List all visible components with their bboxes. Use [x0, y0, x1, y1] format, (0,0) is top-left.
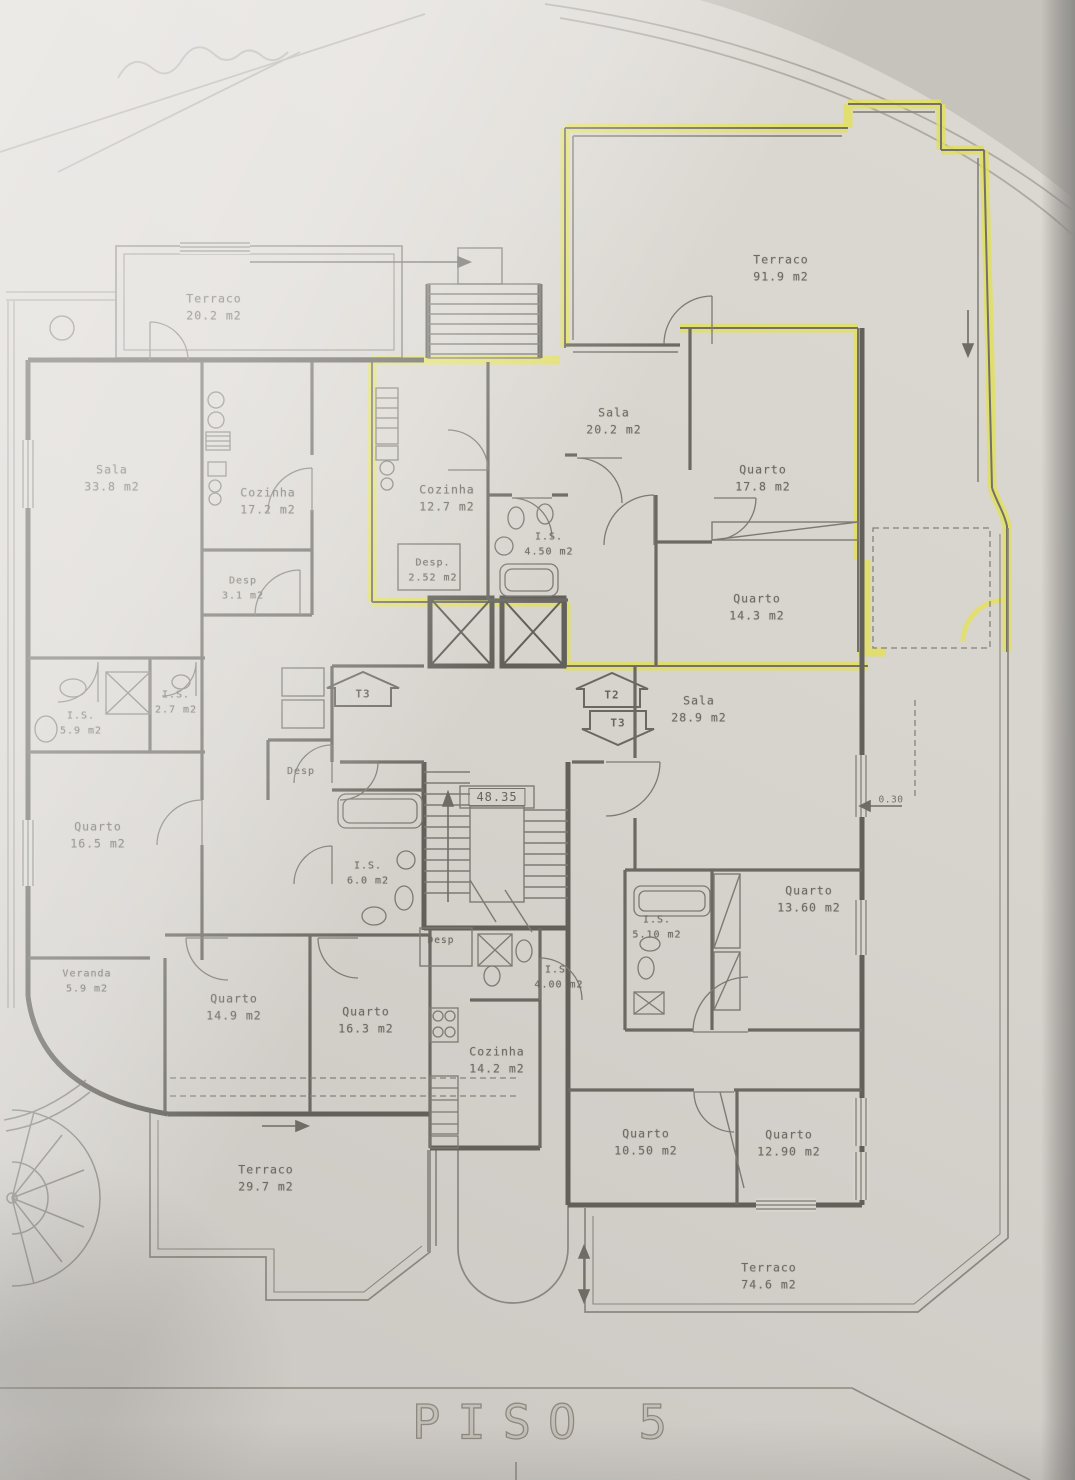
room-label-quarto-17-8: Quarto17.8 m2	[735, 461, 790, 494]
room-label-cozinha-17-2: Cozinha17.2 m2	[240, 484, 295, 517]
highlighted-door-arc	[963, 600, 1005, 642]
room-label-quarto-16-3: Quarto16.3 m2	[338, 1003, 393, 1036]
room-label-quarto-10-50: Quarto10.50 m2	[614, 1125, 677, 1158]
spiral-stair	[4, 1080, 100, 1286]
room-label-is-6-0: I.S.6.0 m2	[347, 860, 389, 889]
room-label-sala-28-9: Sala28.9 m2	[671, 692, 726, 725]
level-marker: 48.35	[468, 788, 525, 806]
room-label-is-4-00: I.S.4.00 m2	[534, 964, 583, 993]
room-label-cozinha-14-2: Cozinha14.2 m2	[469, 1043, 524, 1076]
room-label-quarto-14-9: Quarto14.9 m2	[206, 990, 261, 1023]
room-label-quarto-13-60: Quarto13.60 m2	[777, 882, 840, 915]
elevator-cross-lines	[430, 598, 564, 666]
room-label-terraco-tl: Terraco20.2 m2	[186, 290, 241, 323]
site-boundary-lines	[0, 4, 1075, 1008]
room-label-is-2-7: I.S.2.7 m2	[155, 689, 197, 718]
structural-walls	[28, 284, 862, 1205]
room-label-is-5-9: I.S.5.9 m2	[60, 710, 102, 739]
floor-plan-drawing	[0, 0, 1075, 1480]
unit-marker-t2-right: T2	[604, 689, 619, 702]
room-label-terraco-br: Terraco74.6 m2	[741, 1259, 796, 1292]
room-label-veranda: Veranda5.9 m2	[62, 968, 111, 997]
room-label-quarto-14-3: Quarto14.3 m2	[729, 590, 784, 623]
room-label-is-4-50: I.S.4.50 m2	[524, 531, 573, 560]
windows	[21, 240, 869, 1212]
room-label-terraco-tr: Terraco91.9 m2	[753, 251, 808, 284]
room-label-desp-bottom: Desp	[428, 934, 455, 948]
room-label-cozinha-12-7: Cozinha12.7 m2	[419, 481, 474, 514]
unit-marker-shapes	[327, 672, 654, 745]
room-label-quarto-12-90: Quarto12.90 m2	[757, 1126, 820, 1159]
room-label-sala-20-2: Sala20.2 m2	[586, 404, 641, 437]
room-label-is-5-10: I.S.5.10 m2	[632, 914, 681, 943]
unit-marker-t3-right: T3	[610, 717, 625, 730]
floor-plan-sheet: Terraco20.2 m2 Terraco91.9 m2 Sala33.8 m…	[0, 0, 1075, 1480]
room-label-desp-3-1: Desp3.1 m2	[222, 575, 264, 604]
partition-walls	[28, 328, 862, 1205]
dimension-label: 0.30	[879, 795, 904, 806]
room-label-terraco-bl: Terraco29.7 m2	[238, 1161, 293, 1194]
room-label-quarto-16-5: Quarto16.5 m2	[70, 818, 125, 851]
handwritten-scribble	[118, 47, 288, 78]
room-label-desp-2-52: Desp.2.52 m2	[408, 557, 457, 586]
room-label-sala-33-8: Sala33.8 m2	[84, 461, 139, 494]
room-label-desp-center: Desp	[287, 765, 315, 780]
column	[50, 316, 74, 340]
unit-marker-t3-left: T3	[355, 688, 370, 701]
floor-title: PISO 5	[412, 1396, 684, 1451]
